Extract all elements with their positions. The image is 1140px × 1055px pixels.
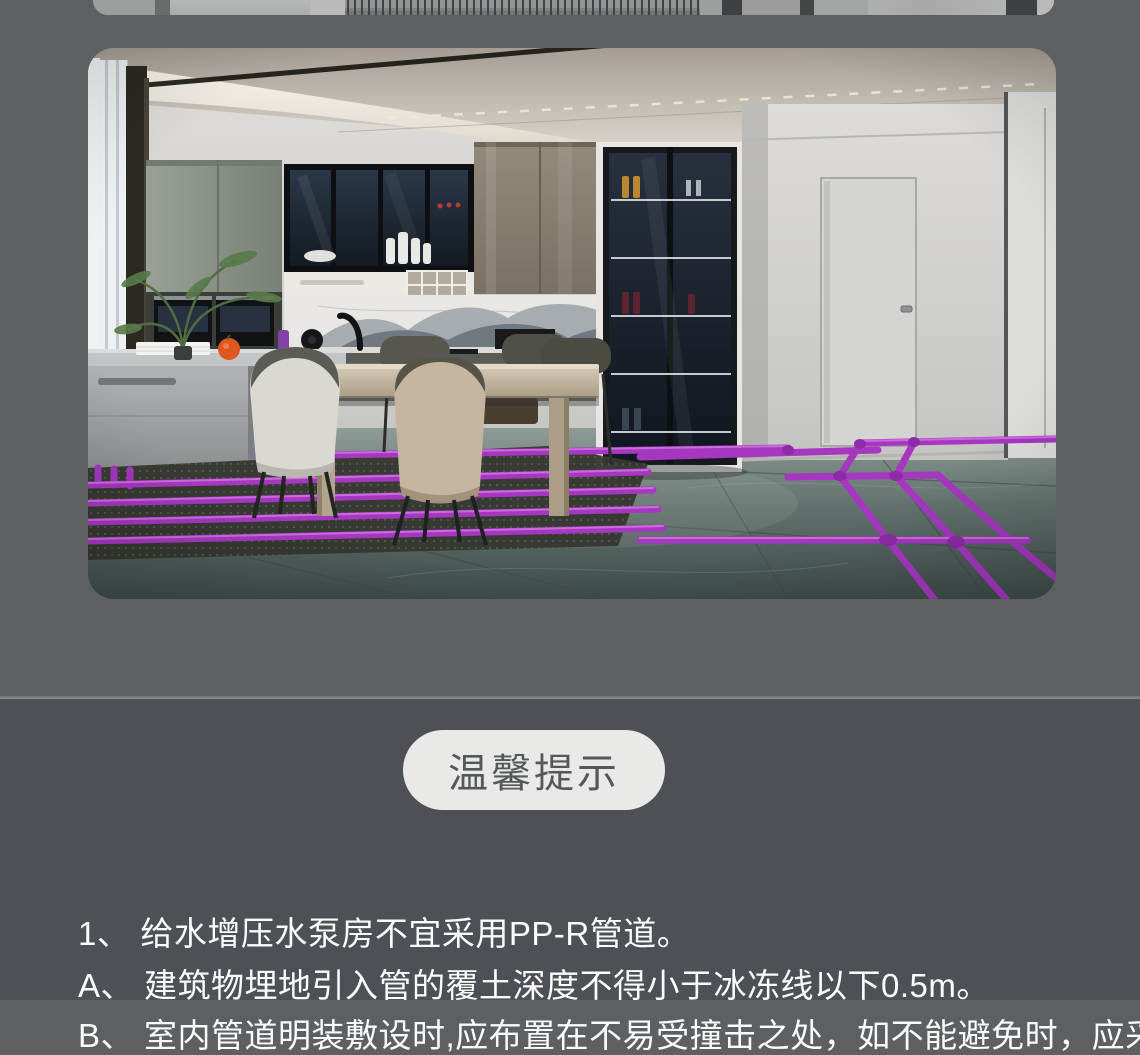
tips-title-badge: 温馨提示: [403, 730, 665, 810]
tip-line-prefix: A、: [78, 967, 134, 1005]
kitchen-photo: [88, 48, 1056, 599]
tip-line: B、 室内管道明装敷设时,应布置在不易受撞击之处，如不能避免时，应采取保护: [78, 1017, 1140, 1055]
tip-line-text: 建筑物埋地引入管的覆土深度不得小于冰冻线以下0.5m。: [144, 967, 990, 1005]
fragment-shade: [93, 0, 1054, 15]
tip-line: A、 建筑物埋地引入管的覆土深度不得小于冰冻线以下0.5m。: [78, 967, 990, 1005]
tip-line-prefix: 1、: [78, 915, 130, 953]
tip-line-text: 给水增压水泵房不宜采用PP-R管道。: [140, 915, 690, 953]
tip-line-text: 室内管道明装敷设时,应布置在不易受撞击之处，如不能避免时，应采取保护: [144, 1017, 1140, 1055]
tip-line: 1、 给水增压水泵房不宜采用PP-R管道。: [78, 915, 690, 953]
previous-image-fragment: [93, 0, 1054, 15]
kitchen-photo-art: [88, 48, 1056, 599]
tips-section: 温馨提示 1、 给水增压水泵房不宜采用PP-R管道。 A、 建筑物埋地引入管的覆…: [0, 699, 1140, 1000]
tips-title-label: 温馨提示: [448, 741, 620, 799]
tip-line-prefix: B、: [78, 1017, 134, 1055]
